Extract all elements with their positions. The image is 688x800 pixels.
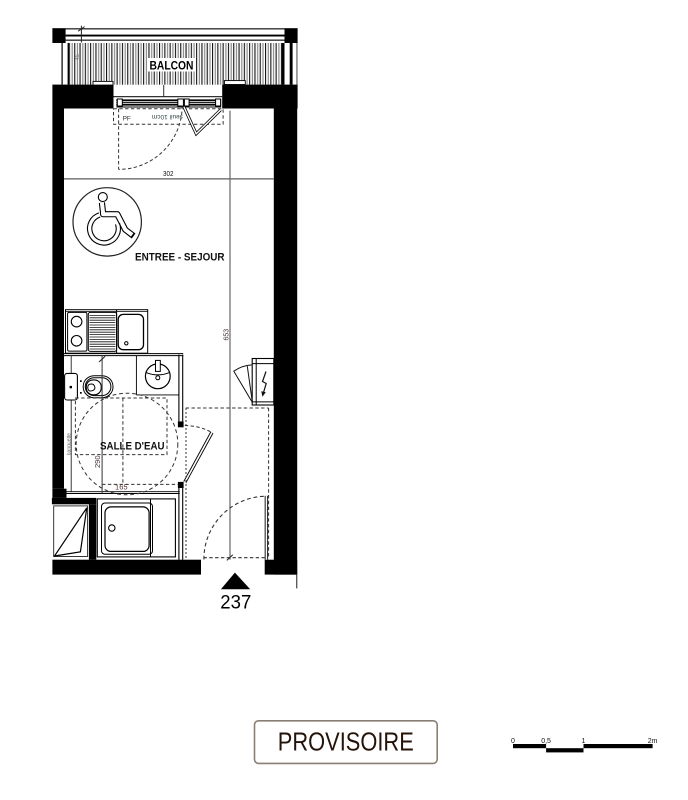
svg-text:PROVISOIRE: PROVISOIRE [278,726,414,756]
svg-text:290: 290 [93,455,102,468]
svg-text:237: 237 [220,593,251,614]
svg-text:BALCON: BALCON [150,61,194,73]
svg-text:302: 302 [163,169,174,178]
svg-text:45: 45 [75,54,81,60]
svg-text:PF: PF [123,115,131,122]
svg-text:1: 1 [582,738,586,745]
svg-text:165: 165 [115,482,128,491]
svg-text:0: 0 [511,738,515,745]
svg-text:banquette: banquette [66,433,72,455]
svg-text:2m: 2m [648,738,658,745]
svg-text:ENTREE - SEJOUR: ENTREE - SEJOUR [135,252,225,264]
svg-text:653: 653 [223,329,230,341]
svg-text:0,5: 0,5 [541,738,551,745]
svg-text:SALLE D'EAU: SALLE D'EAU [100,440,165,452]
svg-text:seuil 10cm: seuil 10cm [152,113,183,120]
